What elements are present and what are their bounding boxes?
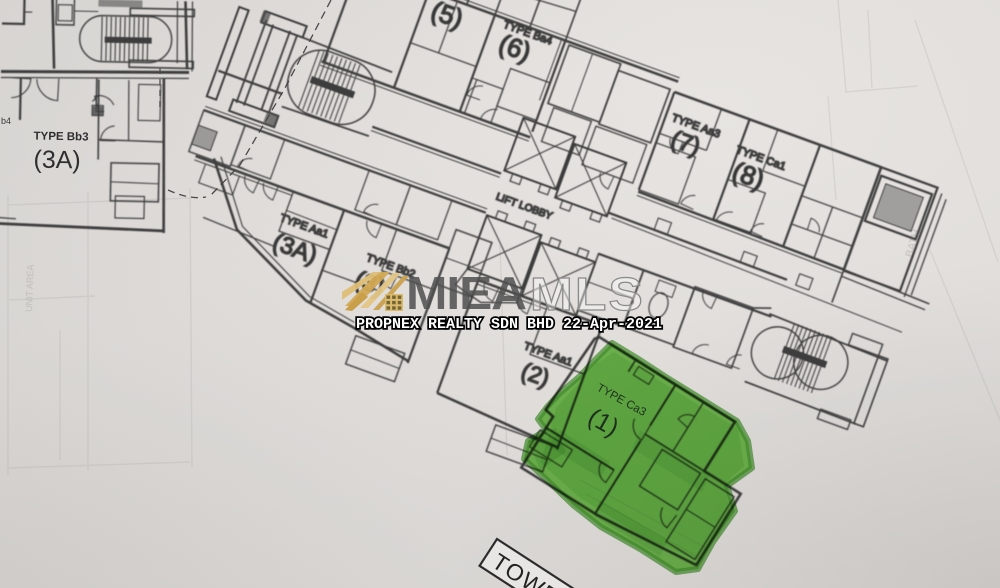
svg-text:UNIT AREA: UNIT AREA xyxy=(24,264,36,312)
svg-text:(3A): (3A) xyxy=(33,146,81,175)
svg-text:TYPE Bb3: TYPE Bb3 xyxy=(33,131,88,144)
svg-text:PROPNEX REALTY SDN BHD 22-Apr-: PROPNEX REALTY SDN BHD 22-Apr-2021 xyxy=(356,316,662,333)
svg-text:MIEA: MIEA xyxy=(406,267,526,319)
svg-text:b4: b4 xyxy=(1,116,11,126)
svg-text:MLS: MLS xyxy=(530,268,645,320)
